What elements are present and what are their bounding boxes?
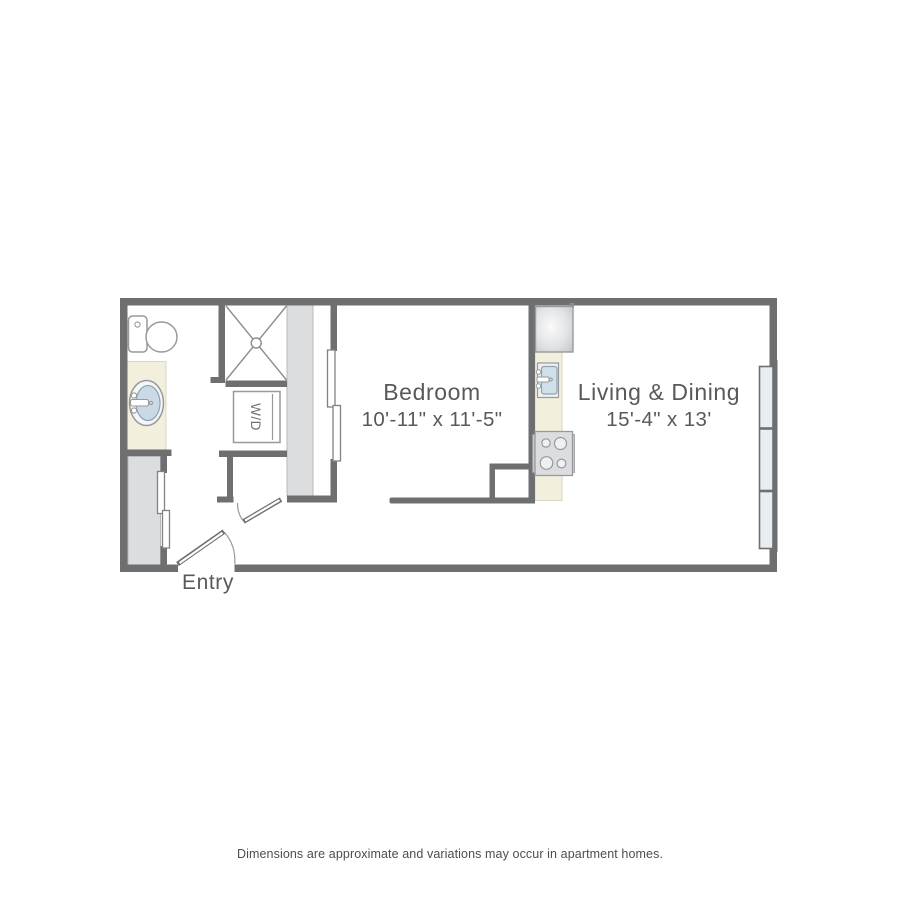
faucet-handle-dot: [536, 384, 540, 388]
bedroom-dimensions: 10'-11" x 11'-5": [332, 408, 532, 432]
faucet-spout: [131, 400, 149, 407]
entry-closet-jamb-top: [161, 456, 168, 473]
closet-bottom-wall: [287, 496, 337, 503]
faucet-handle-dot: [131, 393, 136, 398]
bedroom-closet-jamb-top: [331, 305, 338, 351]
burner: [557, 459, 566, 468]
door-swing-arc: [225, 533, 235, 565]
bedroom-closet-jamb-bottom: [331, 459, 338, 498]
faucet-handle-dot: [536, 370, 540, 374]
bathroom-south-wall: [128, 450, 172, 457]
living-dining-dimensions: 15'-4" x 13': [559, 408, 759, 432]
laundry-bottom-wall: [219, 451, 287, 458]
bottom-wall-right: [235, 565, 778, 573]
disclaimer-text: Dimensions are approximate and variation…: [0, 847, 900, 861]
toilet-bowl: [146, 322, 177, 352]
floorplan-page: Bedroom 10'-11" x 11'-5" Living & Dining…: [0, 0, 900, 900]
faucet-handle-dot: [131, 408, 136, 413]
entry-door: [178, 532, 235, 565]
door-leaf-inner: [245, 500, 280, 520]
entry-closet-jamb-bottom: [161, 546, 168, 565]
hall-left-wall: [227, 457, 233, 498]
entry-closet-door-panel: [158, 472, 165, 514]
entry-closet-shading: [128, 457, 161, 566]
living-dining-name: Living & Dining: [559, 379, 759, 406]
bedroom-south-wall: [390, 498, 534, 504]
right-wall-top: [770, 298, 778, 367]
walls: [120, 298, 778, 572]
stove-body: [535, 432, 573, 476]
shower-wall-tick: [211, 377, 220, 383]
kitchen-sink: [536, 363, 558, 398]
window-pane: [760, 367, 774, 429]
right-wall-bottom: [770, 546, 778, 572]
washer-dryer-label: W/D: [242, 387, 270, 447]
faucet-spout: [537, 377, 549, 382]
toilet-button: [135, 322, 140, 327]
living-dining-label: Living & Dining 15'-4" x 13': [559, 379, 759, 432]
bedroom-label: Bedroom 10'-11" x 11'-5": [332, 379, 532, 432]
window-pane: [760, 492, 774, 549]
pantry-left-wall: [490, 464, 496, 504]
toilet: [129, 316, 178, 352]
floorplan-drawing: [0, 0, 900, 900]
refrigerator: [536, 303, 575, 352]
bedroom-closet-shading: [287, 305, 313, 496]
bathroom-door: [238, 500, 282, 522]
shower-left-wall: [219, 305, 226, 383]
left-wall: [120, 298, 128, 572]
door-leaf-inner: [180, 533, 223, 563]
bedroom-name: Bedroom: [332, 379, 532, 406]
shower-drain: [251, 338, 261, 348]
burner: [555, 438, 567, 450]
door-swing-arc: [238, 503, 244, 521]
pantry-top-wall: [490, 464, 534, 470]
entry-closet-door-panel: [163, 511, 170, 549]
stove: [533, 432, 575, 476]
shower: [226, 306, 287, 380]
burner: [540, 457, 553, 470]
burner: [542, 439, 550, 447]
top-wall: [120, 298, 777, 306]
bathroom-sink: [130, 381, 164, 426]
hall-left-wall-foot: [217, 497, 234, 503]
living-room-window: [760, 367, 774, 549]
entry-label: Entry: [157, 571, 259, 595]
window-pane: [760, 429, 774, 491]
